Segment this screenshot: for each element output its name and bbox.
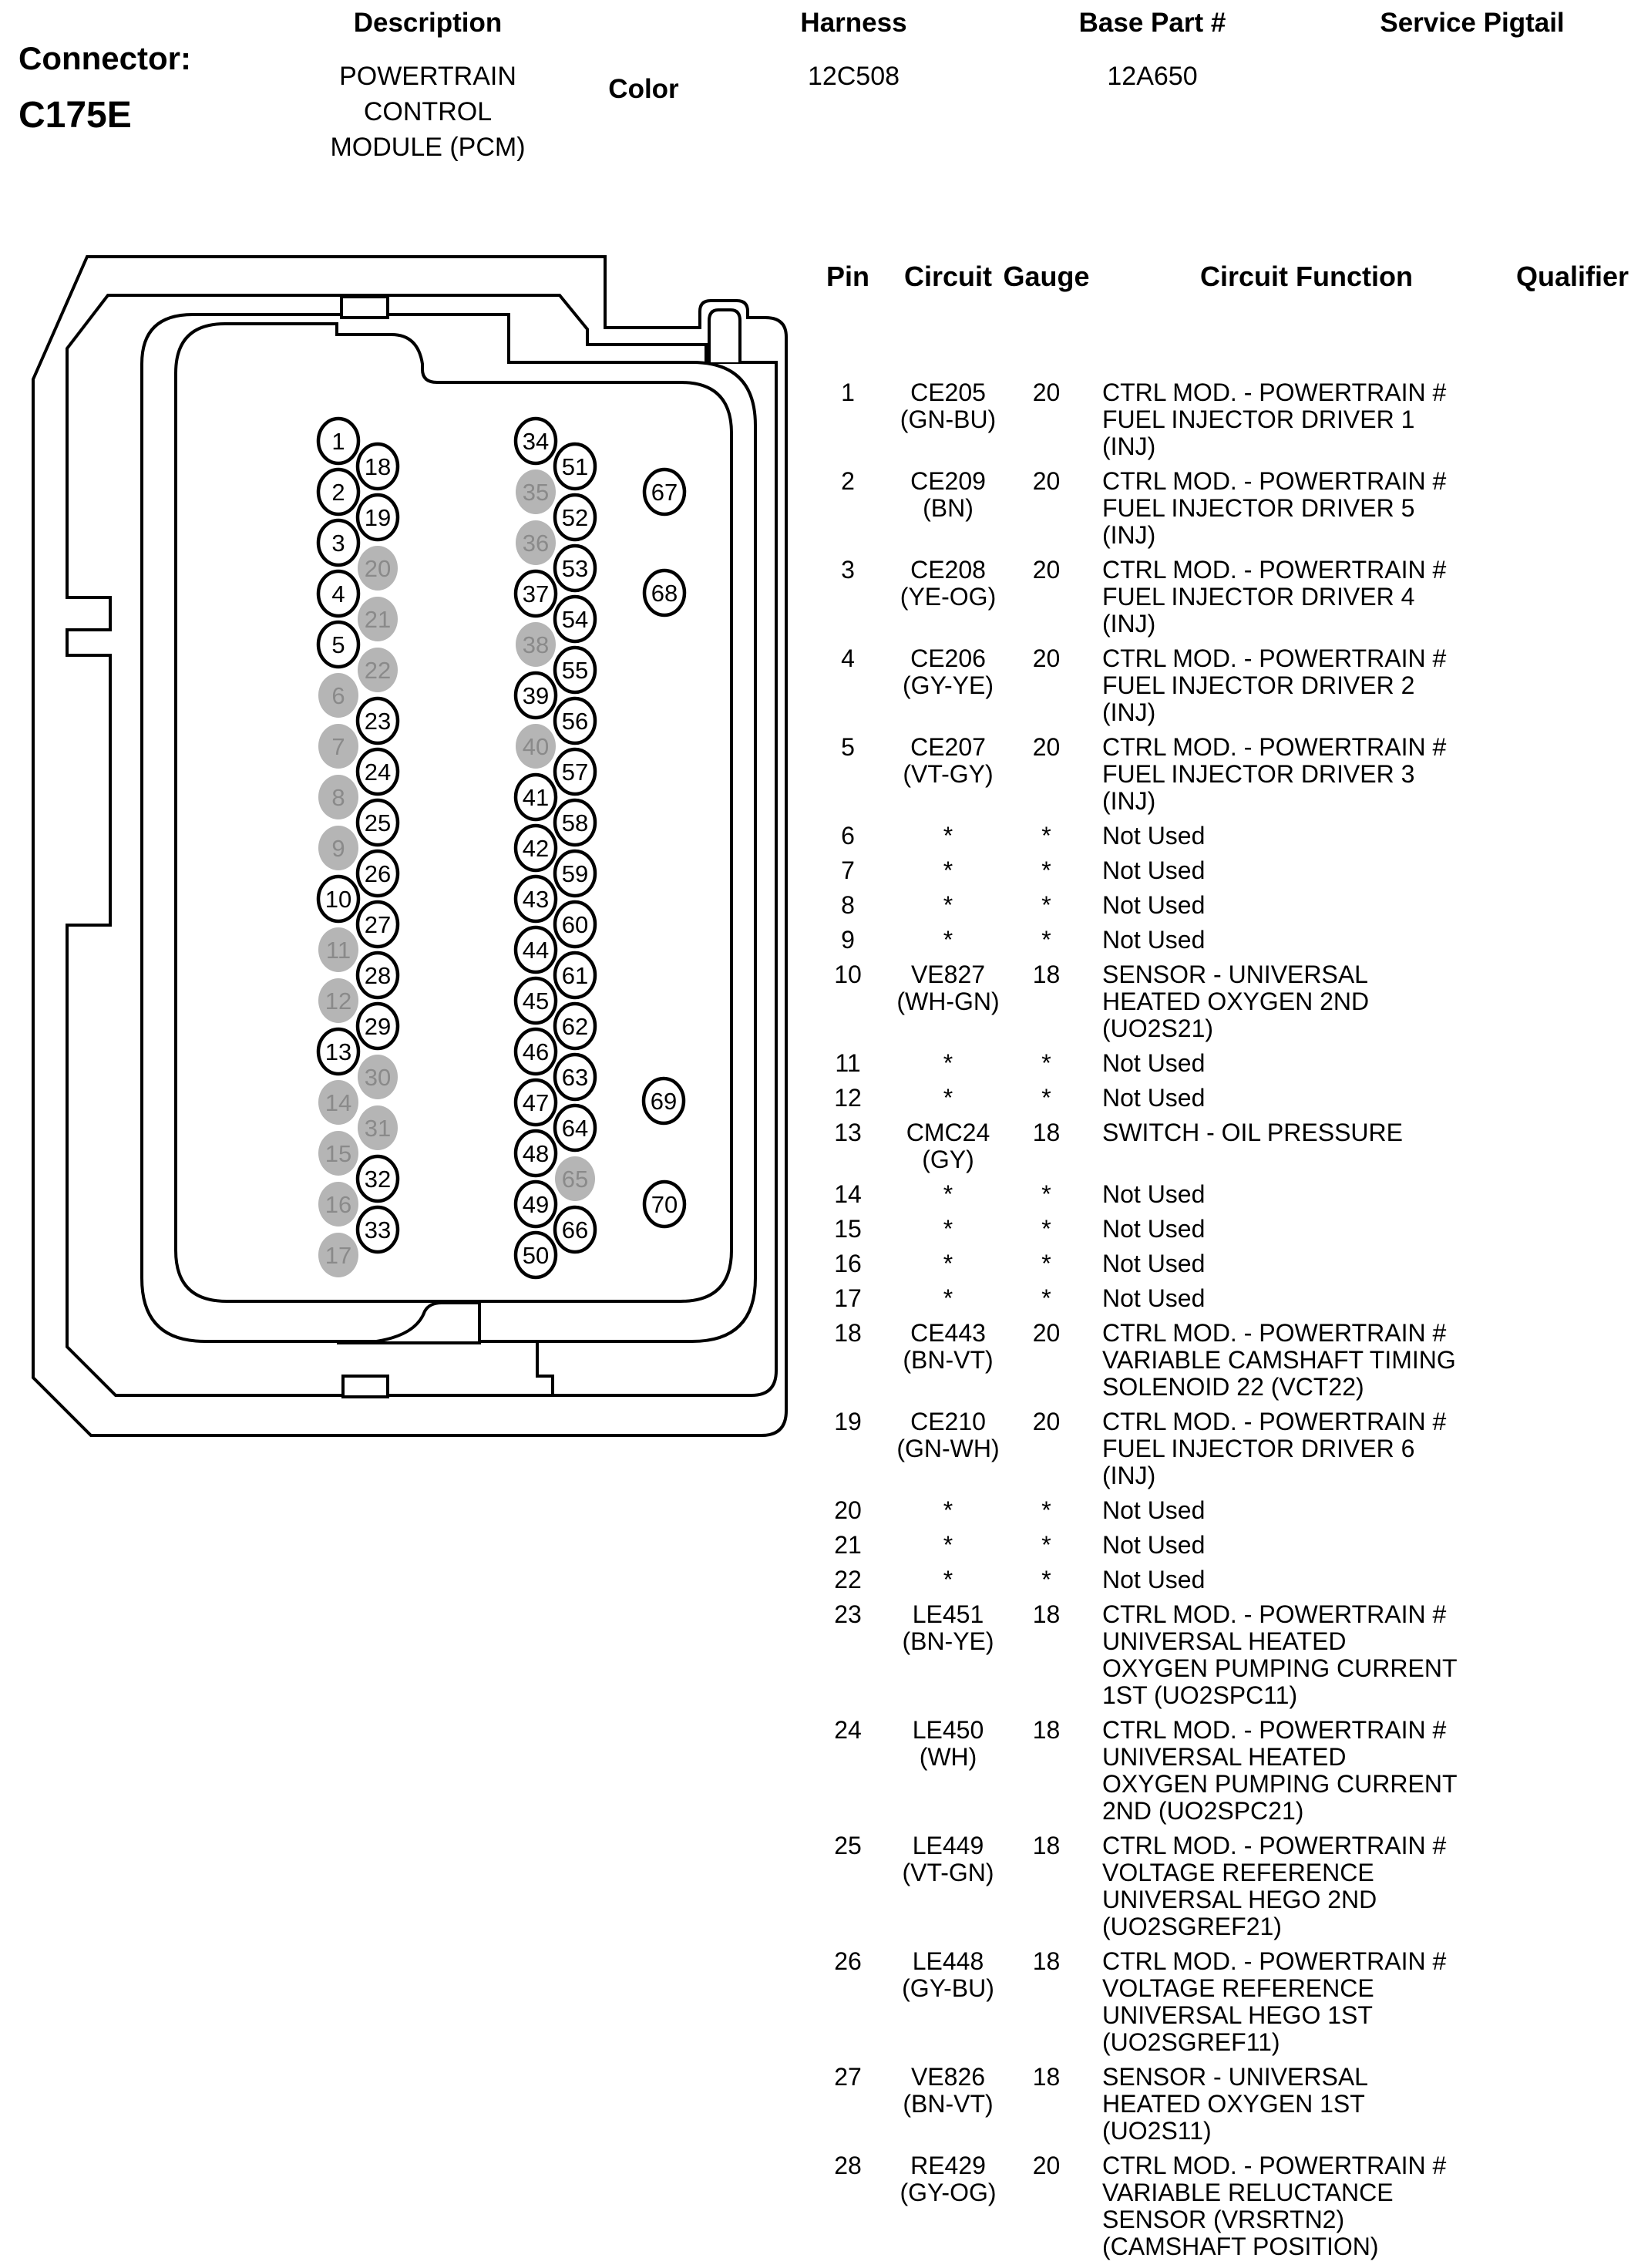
cell-pin: 13	[802, 1119, 894, 1146]
cell-circuit: CE209 (BN)	[894, 468, 1002, 522]
cell-pin: 5	[802, 734, 894, 761]
cell-function: CTRL MOD. - POWERTRAIN # FUEL INJECTOR D…	[1091, 734, 1511, 815]
table-row: 18CE443 (BN-VT)20CTRL MOD. - POWERTRAIN …	[802, 1320, 1631, 1401]
pin-number: 1	[331, 428, 345, 455]
cell-function: Not Used	[1091, 1216, 1511, 1243]
cell-pin: 18	[802, 1320, 894, 1347]
cell-gauge: 18	[1002, 961, 1091, 988]
table-row: 16**Not Used	[802, 1250, 1631, 1277]
cell-pin: 2	[802, 468, 894, 495]
table-row: 27VE826 (BN-VT)18SENSOR - UNIVERSAL HEAT…	[802, 2064, 1631, 2145]
pin-number: 33	[365, 1216, 391, 1243]
cell-gauge: 20	[1002, 1320, 1091, 1347]
cell-gauge: 20	[1002, 468, 1091, 495]
cell-gauge: *	[1002, 1216, 1091, 1243]
pin-number: 19	[365, 504, 391, 531]
cell-gauge: 20	[1002, 645, 1091, 672]
pin-number: 44	[523, 937, 549, 964]
cell-pin: 25	[802, 1832, 894, 1859]
pin-number: 57	[562, 759, 588, 786]
cell-gauge: *	[1002, 892, 1091, 919]
table-row: 2CE209 (BN)20CTRL MOD. - POWERTRAIN # FU…	[802, 468, 1631, 549]
cell-circuit: CMC24 (GY)	[894, 1119, 1002, 1173]
cell-function: CTRL MOD. - POWERTRAIN # FUEL INJECTOR D…	[1091, 1408, 1511, 1489]
cell-circuit: CE443 (BN-VT)	[894, 1320, 1002, 1374]
cell-function: CTRL MOD. - POWERTRAIN # UNIVERSAL HEATE…	[1091, 1601, 1511, 1709]
cell-pin: 21	[802, 1532, 894, 1559]
cell-circuit: RE429 (GY-OG)	[894, 2152, 1002, 2206]
pin-number: 54	[562, 606, 588, 633]
cell-circuit: *	[894, 823, 1002, 850]
cell-gauge: 18	[1002, 1601, 1091, 1628]
pin-number: 62	[562, 1013, 588, 1040]
cell-circuit: *	[894, 1085, 1002, 1112]
pin-number: 10	[325, 886, 351, 913]
pin-number: 35	[523, 479, 549, 506]
cell-circuit: *	[894, 1566, 1002, 1593]
table-row: 28RE429 (GY-OG)20CTRL MOD. - POWERTRAIN …	[802, 2152, 1631, 2260]
pin-number: 70	[651, 1191, 678, 1218]
cell-pin: 11	[802, 1050, 894, 1077]
pin-number: 28	[365, 962, 391, 989]
cell-gauge: *	[1002, 1566, 1091, 1593]
col-header-function: Circuit Function	[1091, 261, 1511, 293]
cell-circuit: *	[894, 1050, 1002, 1077]
pin-number: 21	[365, 606, 391, 633]
cell-pin: 20	[802, 1497, 894, 1524]
pin-number: 16	[325, 1191, 351, 1218]
table-row: 23LE451 (BN-YE)18CTRL MOD. - POWERTRAIN …	[802, 1601, 1631, 1709]
connector-diagram: 1234567891011121314151617181920212223242…	[0, 0, 817, 1480]
pin-number: 34	[523, 428, 549, 455]
cell-circuit: *	[894, 892, 1002, 919]
cell-function: Not Used	[1091, 857, 1511, 884]
cell-function: Not Used	[1091, 1566, 1511, 1593]
service-pigtail-header: Service Pigtail	[1364, 8, 1580, 39]
cell-pin: 17	[802, 1285, 894, 1312]
table-row: 19CE210 (GN-WH)20CTRL MOD. - POWERTRAIN …	[802, 1408, 1631, 1489]
cell-gauge: *	[1002, 857, 1091, 884]
cell-pin: 26	[802, 1948, 894, 1975]
pin-number: 30	[365, 1064, 391, 1091]
cell-function: Not Used	[1091, 1497, 1511, 1524]
table-row: 1CE205 (GN-BU)20CTRL MOD. - POWERTRAIN #…	[802, 379, 1631, 460]
cell-circuit: LE451 (BN-YE)	[894, 1601, 1002, 1655]
cell-circuit: LE449 (VT-GN)	[894, 1832, 1002, 1886]
table-row: 24LE450 (WH)18CTRL MOD. - POWERTRAIN # U…	[802, 1717, 1631, 1825]
cell-gauge: 18	[1002, 2064, 1091, 2091]
pin-number: 61	[562, 962, 588, 989]
service-pigtail-column: Service Pigtail	[1364, 8, 1580, 39]
table-row: 10VE827 (WH-GN)18SENSOR - UNIVERSAL HEAT…	[802, 961, 1631, 1042]
pin-number: 7	[331, 733, 345, 760]
pin-number: 5	[331, 631, 345, 658]
cell-gauge: 18	[1002, 1717, 1091, 1744]
pin-number: 37	[523, 580, 549, 607]
pin-number: 55	[562, 657, 588, 684]
table-body: 1CE205 (GN-BU)20CTRL MOD. - POWERTRAIN #…	[802, 379, 1631, 2260]
cell-function: Not Used	[1091, 1532, 1511, 1559]
pin-number: 3	[331, 530, 345, 557]
table-row: 14**Not Used	[802, 1181, 1631, 1208]
pin-number: 58	[562, 809, 588, 836]
cell-pin: 12	[802, 1085, 894, 1112]
pin-number: 9	[331, 835, 345, 862]
cell-pin: 15	[802, 1216, 894, 1243]
pin-number: 67	[651, 479, 678, 506]
pin-number: 25	[365, 809, 391, 836]
pin-number: 51	[562, 453, 588, 480]
pin-number: 63	[562, 1064, 588, 1091]
cell-pin: 16	[802, 1250, 894, 1277]
pin-number: 64	[562, 1115, 588, 1142]
cell-function: Not Used	[1091, 892, 1511, 919]
cell-circuit: *	[894, 1216, 1002, 1243]
cell-gauge: 20	[1002, 734, 1091, 761]
cell-function: SENSOR - UNIVERSAL HEATED OXYGEN 1ST (UO…	[1091, 2064, 1511, 2145]
pin-number: 6	[331, 682, 345, 709]
pin-number: 46	[523, 1038, 549, 1065]
table-row: 6**Not Used	[802, 823, 1631, 850]
pin-number: 17	[325, 1242, 351, 1269]
cell-gauge: *	[1002, 1050, 1091, 1077]
cell-function: Not Used	[1091, 1250, 1511, 1277]
cell-function: CTRL MOD. - POWERTRAIN # FUEL INJECTOR D…	[1091, 379, 1511, 460]
pin-number: 12	[325, 988, 351, 1015]
pin-number: 45	[523, 988, 549, 1015]
col-header-pin: Pin	[802, 261, 894, 293]
cell-circuit: LE448 (GY-BU)	[894, 1948, 1002, 2002]
table-row: 20**Not Used	[802, 1497, 1631, 1524]
cell-gauge: 18	[1002, 1948, 1091, 1975]
table-row: 12**Not Used	[802, 1085, 1631, 1112]
pin-number: 41	[523, 784, 549, 811]
pin-number: 11	[326, 937, 351, 964]
cell-function: CTRL MOD. - POWERTRAIN # VOLTAGE REFEREN…	[1091, 1832, 1511, 1940]
cell-function: SENSOR - UNIVERSAL HEATED OXYGEN 2ND (UO…	[1091, 961, 1511, 1042]
base-part-value: 12A650	[1060, 59, 1245, 94]
cell-circuit: *	[894, 1285, 1002, 1312]
cell-function: Not Used	[1091, 1181, 1511, 1208]
pin-number: 42	[523, 835, 549, 862]
cell-gauge: *	[1002, 1497, 1091, 1524]
pin-number: 29	[365, 1013, 391, 1040]
cell-pin: 27	[802, 2064, 894, 2091]
table-row: 22**Not Used	[802, 1566, 1631, 1593]
cell-circuit: CE206 (GY-YE)	[894, 645, 1002, 699]
cell-pin: 24	[802, 1717, 894, 1744]
cell-gauge: *	[1002, 823, 1091, 850]
cell-function: CTRL MOD. - POWERTRAIN # VARIABLE RELUCT…	[1091, 2152, 1511, 2260]
pin-table: Pin Circuit Gauge Circuit Function Quali…	[802, 261, 1631, 2268]
pin-number: 50	[523, 1242, 549, 1269]
pin-number: 56	[562, 708, 588, 735]
table-row: 21**Not Used	[802, 1532, 1631, 1559]
cell-gauge: 20	[1002, 557, 1091, 584]
pin-number: 26	[365, 860, 391, 887]
cell-circuit: CE210 (GN-WH)	[894, 1408, 1002, 1462]
cell-circuit: *	[894, 857, 1002, 884]
cell-circuit: *	[894, 1532, 1002, 1559]
cell-gauge: *	[1002, 1085, 1091, 1112]
pin-number: 43	[523, 886, 549, 913]
cell-gauge: *	[1002, 1250, 1091, 1277]
pin-number: 69	[651, 1088, 677, 1115]
table-row: 15**Not Used	[802, 1216, 1631, 1243]
cell-gauge: *	[1002, 1181, 1091, 1208]
top-tab	[341, 297, 388, 318]
base-part-header: Base Part #	[1060, 8, 1245, 39]
cell-function: SWITCH - OIL PRESSURE	[1091, 1119, 1511, 1146]
pin-number: 4	[331, 580, 345, 607]
pin-number: 27	[365, 911, 391, 938]
table-row: 4CE206 (GY-YE)20CTRL MOD. - POWERTRAIN #…	[802, 645, 1631, 726]
pin-number: 60	[562, 911, 588, 938]
pin-number: 49	[523, 1191, 549, 1218]
pin-number: 39	[523, 682, 549, 709]
pin-number: 8	[331, 784, 345, 811]
cell-gauge: 18	[1002, 1832, 1091, 1859]
cell-circuit: VE826 (BN-VT)	[894, 2064, 1002, 2118]
cell-circuit: LE450 (WH)	[894, 1717, 1002, 1771]
pin-number: 66	[562, 1216, 588, 1243]
pin-number: 36	[523, 530, 549, 557]
pin-number: 68	[651, 580, 678, 607]
cell-gauge: *	[1002, 1285, 1091, 1312]
cell-function: CTRL MOD. - POWERTRAIN # VOLTAGE REFEREN…	[1091, 1948, 1511, 2056]
pin-number: 13	[325, 1038, 351, 1065]
pin-number: 2	[331, 479, 345, 506]
pin-number: 14	[325, 1089, 351, 1116]
pin-number: 32	[365, 1166, 391, 1193]
pin-number: 23	[365, 708, 391, 735]
cell-pin: 8	[802, 892, 894, 919]
table-row: 7**Not Used	[802, 857, 1631, 884]
base-part-column: Base Part # 12A650	[1060, 8, 1245, 94]
pin-number: 20	[365, 555, 391, 582]
cell-gauge: *	[1002, 1532, 1091, 1559]
table-row: 13CMC24 (GY)18SWITCH - OIL PRESSURE	[802, 1119, 1631, 1173]
latch-finger-fill	[709, 310, 740, 362]
cell-circuit: CE208 (YE-OG)	[894, 557, 1002, 611]
col-header-gauge: Gauge	[1002, 261, 1091, 293]
cell-pin: 22	[802, 1566, 894, 1593]
cell-function: Not Used	[1091, 1285, 1511, 1312]
pin-number: 15	[325, 1140, 351, 1167]
cell-pin: 10	[802, 961, 894, 988]
cell-circuit: VE827 (WH-GN)	[894, 961, 1002, 1015]
cell-function: CTRL MOD. - POWERTRAIN # FUEL INJECTOR D…	[1091, 468, 1511, 549]
pin-number: 48	[523, 1140, 549, 1167]
pin-number: 22	[365, 657, 391, 684]
table-row: 25LE449 (VT-GN)18CTRL MOD. - POWERTRAIN …	[802, 1832, 1631, 1940]
cell-circuit: *	[894, 927, 1002, 954]
cell-function: Not Used	[1091, 927, 1511, 954]
cell-circuit: *	[894, 1250, 1002, 1277]
cell-function: Not Used	[1091, 1085, 1511, 1112]
table-row: 3CE208 (YE-OG)20CTRL MOD. - POWERTRAIN #…	[802, 557, 1631, 638]
cell-circuit: CE205 (GN-BU)	[894, 379, 1002, 433]
cell-pin: 23	[802, 1601, 894, 1628]
pin-number: 40	[523, 733, 549, 760]
pin-number: 53	[562, 555, 588, 582]
cell-circuit: CE207 (VT-GY)	[894, 734, 1002, 788]
cell-gauge: 20	[1002, 379, 1091, 406]
table-row: 8**Not Used	[802, 892, 1631, 919]
table-row: 9**Not Used	[802, 927, 1631, 954]
cell-function: CTRL MOD. - POWERTRAIN # UNIVERSAL HEATE…	[1091, 1717, 1511, 1825]
cell-pin: 14	[802, 1181, 894, 1208]
cell-pin: 3	[802, 557, 894, 584]
cell-function: CTRL MOD. - POWERTRAIN # FUEL INJECTOR D…	[1091, 645, 1511, 726]
col-header-circuit: Circuit	[894, 261, 1002, 293]
page: { "header": { "connector_label": "Connec…	[0, 0, 1631, 2242]
cavity-outline	[176, 324, 731, 1301]
cell-gauge: 18	[1002, 1119, 1091, 1146]
col-header-qualifier: Qualifier	[1511, 261, 1631, 293]
pin-number: 52	[562, 504, 588, 531]
pin-number: 38	[523, 631, 549, 658]
cell-gauge: 20	[1002, 1408, 1091, 1435]
cell-function: Not Used	[1091, 1050, 1511, 1077]
table-row: 11**Not Used	[802, 1050, 1631, 1077]
pin-number: 31	[365, 1115, 391, 1142]
pin-number: 65	[562, 1166, 588, 1193]
pin-number: 47	[523, 1089, 549, 1116]
cell-function: Not Used	[1091, 823, 1511, 850]
pin-number: 24	[365, 759, 391, 786]
cell-function: CTRL MOD. - POWERTRAIN # VARIABLE CAMSHA…	[1091, 1320, 1511, 1401]
cell-pin: 4	[802, 645, 894, 672]
cell-circuit: *	[894, 1497, 1002, 1524]
table-row: 26LE448 (GY-BU)18CTRL MOD. - POWERTRAIN …	[802, 1948, 1631, 2056]
table-row: 5CE207 (VT-GY)20CTRL MOD. - POWERTRAIN #…	[802, 734, 1631, 815]
cell-gauge: *	[1002, 927, 1091, 954]
cell-pin: 1	[802, 379, 894, 406]
table-header-row: Pin Circuit Gauge Circuit Function Quali…	[802, 261, 1631, 293]
cell-gauge: 20	[1002, 2152, 1091, 2179]
cell-pin: 19	[802, 1408, 894, 1435]
cell-pin: 6	[802, 823, 894, 850]
bottom-tab	[343, 1376, 388, 1397]
pin-number: 59	[562, 860, 588, 887]
cell-circuit: *	[894, 1181, 1002, 1208]
cell-pin: 7	[802, 857, 894, 884]
pin-number: 18	[365, 453, 391, 480]
cell-pin: 9	[802, 927, 894, 954]
cell-pin: 28	[802, 2152, 894, 2179]
table-row: 17**Not Used	[802, 1285, 1631, 1312]
cell-function: CTRL MOD. - POWERTRAIN # FUEL INJECTOR D…	[1091, 557, 1511, 638]
